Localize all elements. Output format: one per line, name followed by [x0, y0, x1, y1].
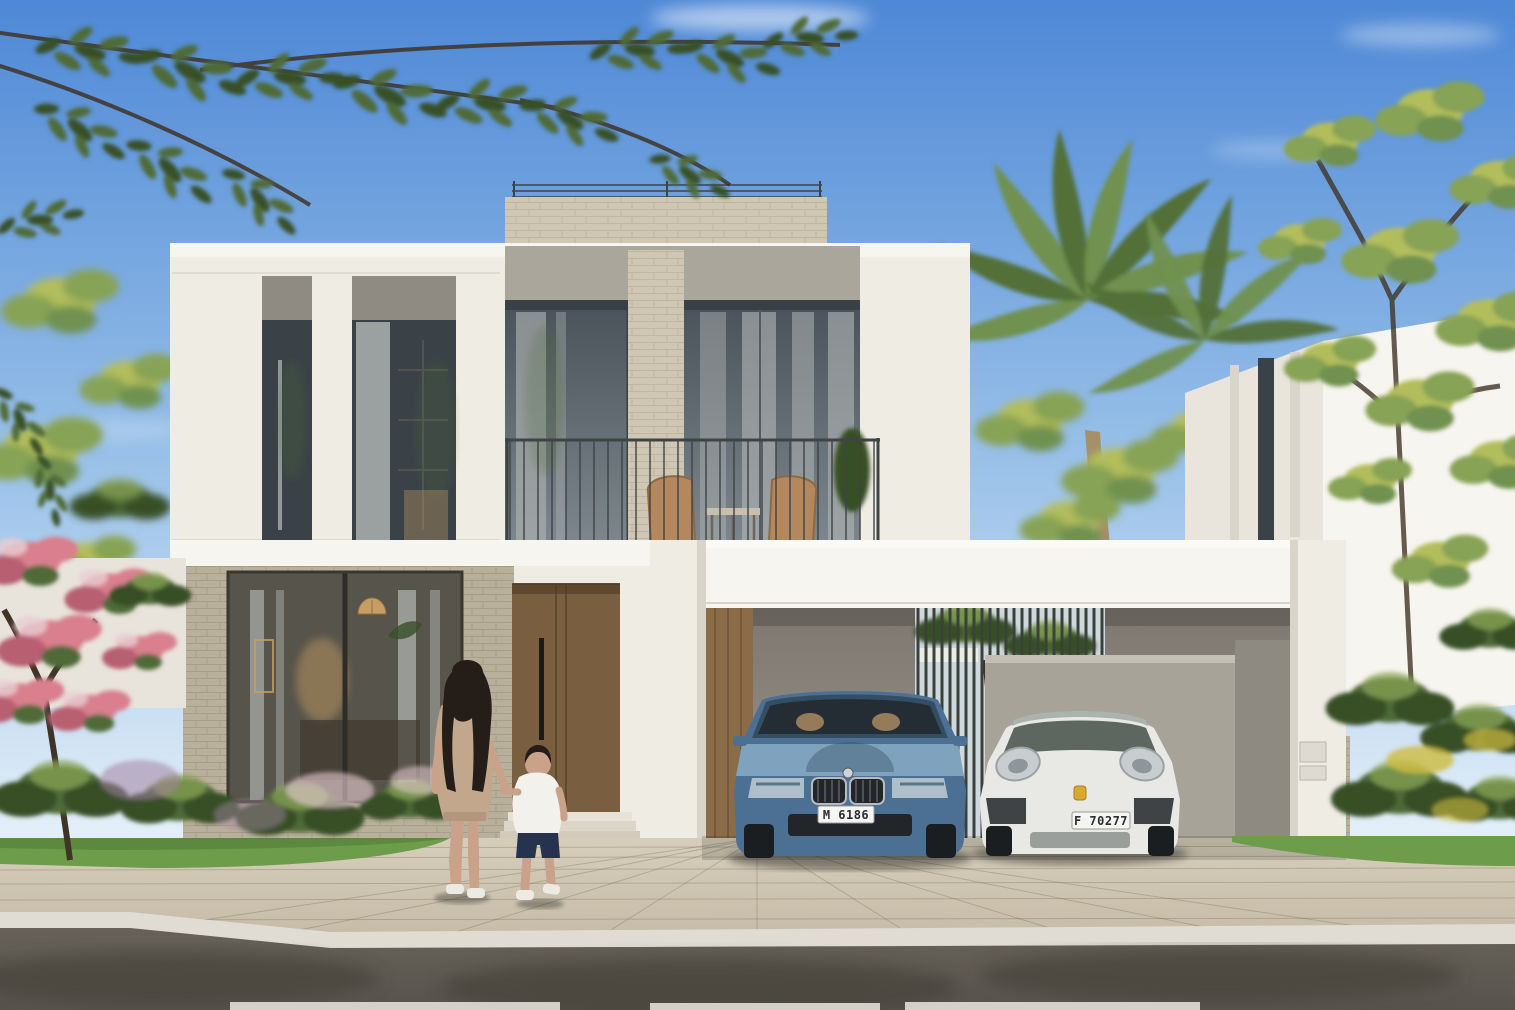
front-wheel: [926, 824, 956, 858]
windshield: [758, 699, 942, 734]
roof-terrace: [505, 181, 827, 246]
sedan-car: M 6186: [728, 691, 972, 870]
side-mirror: [953, 736, 967, 746]
architectural-render: M 6186 F 70277: [0, 0, 1515, 1010]
road-markings: [230, 1002, 1200, 1010]
license-plate-text: F 70277: [1074, 814, 1128, 828]
upper-floor: [170, 243, 970, 567]
side-mirror: [733, 736, 747, 746]
side-intake: [1134, 798, 1174, 824]
license-plate-text: M 6186: [823, 808, 869, 822]
door-handle: [539, 638, 544, 740]
front-wheel: [744, 824, 774, 858]
utility-panel: [1300, 742, 1326, 780]
sports-car: F 70277: [972, 711, 1188, 865]
front-wheel: [1148, 826, 1174, 856]
side-intake: [986, 798, 1026, 824]
center-intake: [1030, 832, 1130, 848]
hood-crest: [1074, 786, 1086, 800]
villa-scene: M 6186 F 70277: [0, 0, 1515, 1010]
carport-beam: [650, 540, 1345, 608]
upper-window-narrow: [262, 276, 312, 544]
front-wheel: [986, 826, 1012, 856]
upper-window-wide: [352, 276, 456, 544]
